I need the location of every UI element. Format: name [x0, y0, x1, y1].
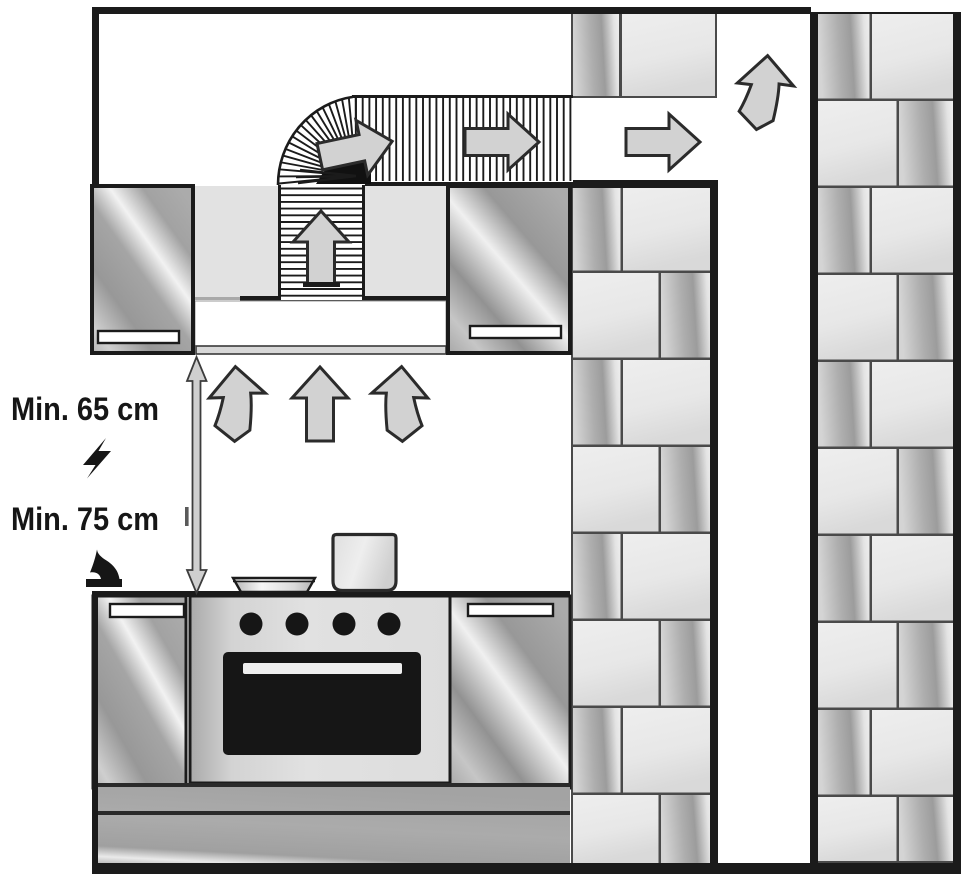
svg-text:Min. 75 cm: Min. 75 cm: [11, 501, 159, 537]
svg-text:Min. 65 cm: Min. 65 cm: [11, 391, 159, 427]
